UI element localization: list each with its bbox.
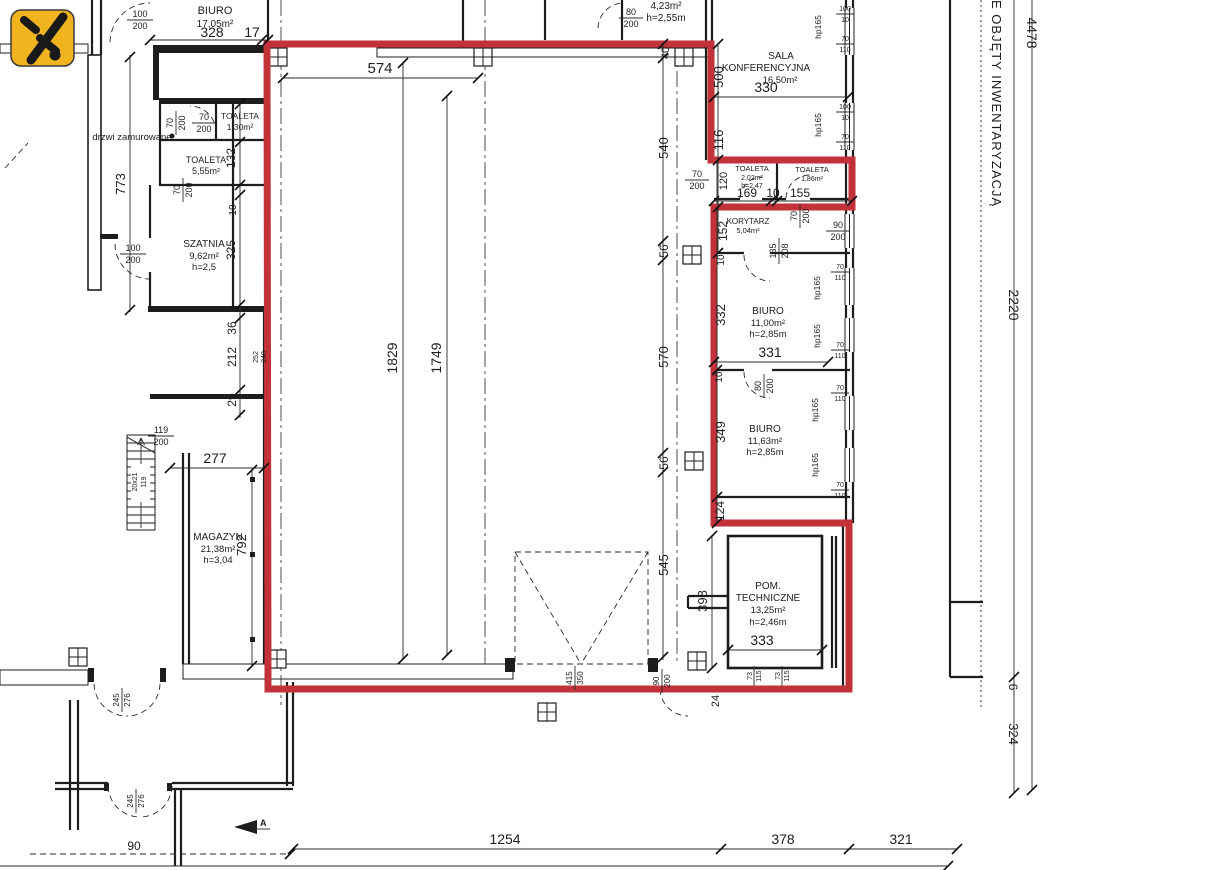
fr-135-208: 135 208: [768, 238, 790, 264]
dim-277: 277: [203, 450, 227, 466]
dim-24: 24: [710, 695, 722, 707]
fr-biuro-door: 100 200: [127, 9, 153, 31]
fr-stairs: 119 200: [148, 425, 174, 447]
dim-252: 252: [253, 351, 260, 363]
room-pomtech-name1: POM.: [755, 581, 781, 592]
fr-n: 70: [172, 185, 182, 195]
room-korytarz-name: KORYTARZ: [727, 217, 770, 226]
dim-332: 332: [713, 304, 728, 326]
fr-d: 200: [132, 21, 147, 31]
room-pomtech-name2: TECHNICZNE: [736, 593, 801, 604]
room-toaleta555-area: 5,55m²: [192, 166, 220, 176]
room-magazyn-height: h=3,04: [203, 555, 232, 566]
fr-n: 80: [753, 381, 763, 391]
room-biuro1100-name: BIURO: [752, 306, 784, 317]
room-szatnia-height: h=2,5: [192, 262, 216, 273]
fr-biuro2-door: 80 200: [753, 374, 775, 398]
fr-d: 110: [834, 396, 845, 403]
room-korytarz-area: 5,04m²: [736, 226, 760, 235]
dim-56a: 56: [657, 244, 671, 258]
room-biuro1163-area: 11,63m²: [748, 436, 782, 447]
room-biuro1163-name: BIURO: [749, 424, 781, 435]
dim-792: 792: [234, 534, 249, 556]
hp165-2: hp165: [813, 113, 823, 137]
room-sala-name1: SALA: [768, 51, 794, 62]
fr-n: 70: [836, 482, 844, 489]
room-biuro17-name: BIURO: [198, 5, 233, 17]
dim-90: 90: [127, 839, 141, 853]
fr-n: 70: [836, 264, 844, 271]
section-marker-label: A: [260, 818, 267, 828]
gate-opening: [515, 552, 648, 664]
fr-porch-door-2: 245 276: [126, 789, 146, 813]
fr-n: 70: [841, 36, 849, 43]
fr-n: 415: [565, 671, 574, 685]
fr-d: 110: [839, 47, 850, 54]
hp165-1: hp165: [813, 15, 823, 39]
fr-n: 135: [768, 243, 778, 258]
dim-4478: 4478: [1024, 17, 1040, 48]
room-biuro1100-height: h=2,85m: [749, 329, 786, 340]
stairs-width-label: 119: [141, 476, 148, 487]
room-pomtech-height: h=2,46m: [749, 617, 786, 628]
dim-570: 570: [656, 346, 671, 368]
hp165-6: hp165: [810, 453, 820, 477]
fr-n: 70: [836, 342, 844, 349]
floor-plan-canvas: 20x21 119 A BIURO 17,05m² TOALETA: [0, 0, 1223, 870]
fr-n: 70: [841, 134, 849, 141]
dim-545: 545: [656, 554, 671, 576]
dim-152: 152: [716, 221, 730, 241]
bricked-door-note: drzwi zamurowane: [92, 132, 171, 143]
room-magazyn-area: 21,38m²: [201, 544, 236, 555]
dim-169: 169: [737, 186, 757, 200]
fr-d: 200: [830, 232, 845, 242]
fr-toilet-right-door: 70 200: [685, 169, 709, 191]
dim-10b: 10: [228, 204, 239, 216]
dim-349: 349: [713, 421, 728, 443]
left-wall-strip: [88, 55, 101, 290]
inventory-note: E OBJĘTY INWENTARYZACJĄ: [989, 0, 1004, 207]
fr-n: 70: [836, 385, 844, 392]
fr-n: 73: [775, 672, 782, 680]
section-marker-a: A: [234, 818, 270, 834]
dim-398: 398: [695, 590, 710, 612]
fr-d: 200: [623, 19, 638, 29]
fr-porch-door-1: 245 276: [112, 688, 132, 712]
fr-d: 200: [196, 124, 211, 134]
dim-212: 212: [225, 347, 239, 367]
stairs-steps-label: 20x21: [132, 472, 139, 491]
dim-116: 116: [711, 130, 726, 151]
dim-378: 378: [771, 831, 795, 847]
fr-d: 110: [834, 353, 845, 360]
room-toaleta555-name: TOALETA: [186, 155, 226, 165]
fr-d: 276: [137, 794, 146, 808]
fr-n: 70: [199, 112, 209, 122]
fr-d: 350: [576, 671, 585, 685]
fr-n: 90: [833, 220, 843, 230]
dim-10d: 10: [714, 371, 725, 383]
fr-d: 200: [765, 378, 775, 393]
fr-toaleta-door-h: 70 200: [192, 112, 216, 134]
stairs: 20x21 119: [127, 435, 155, 530]
fr-d: 200: [184, 182, 194, 197]
fr-n: 100: [132, 9, 147, 19]
dim-331: 331: [758, 344, 782, 360]
fr-n: 70: [789, 211, 799, 221]
room-423-area: 4,23m²: [650, 1, 682, 12]
dim-120: 120: [718, 172, 730, 190]
room-biuro1100-area: 11,00m²: [751, 318, 785, 329]
dim-1749: 1749: [428, 342, 444, 373]
fr-n: 245: [112, 693, 121, 707]
dim-10c: 10: [716, 254, 727, 266]
fr-d: 10: [841, 17, 849, 24]
dim-17: 17: [244, 24, 260, 40]
dim-328: 328: [200, 24, 224, 40]
dim-321: 321: [889, 831, 913, 847]
room-toaleta130-name: TOALETA: [221, 111, 259, 121]
dim-132: 132: [224, 148, 238, 168]
fr-d: 200: [663, 674, 672, 688]
dim-124: 124: [713, 501, 727, 521]
fr-d: 110: [834, 275, 845, 282]
walls: [55, 0, 983, 866]
fr-n: 119: [154, 425, 168, 435]
dim-10a: 10: [766, 186, 780, 200]
fr-n: 80: [626, 7, 636, 17]
dim-36: 36: [225, 321, 239, 335]
dim-2220: 2220: [1006, 289, 1022, 320]
fr-d: 115: [784, 670, 791, 681]
fr-szatnia-left-door: 100 200: [120, 243, 146, 265]
fr-d: 276: [123, 693, 132, 707]
fr-n: 100: [839, 104, 851, 111]
columns: [69, 48, 706, 721]
dim-333: 333: [750, 632, 774, 648]
dim-56b: 56: [657, 456, 671, 470]
dim-155: 155: [790, 186, 810, 200]
dim-1829: 1829: [384, 342, 400, 373]
room-toaleta186-area: 1,86m²: [801, 176, 823, 183]
dim-325: 325: [224, 240, 238, 260]
dim-540: 540: [656, 137, 671, 159]
room-toaleta130-area: 1,30m²: [227, 122, 254, 132]
fr-d: 200: [125, 255, 140, 265]
room-423-height: h=2,55m: [646, 13, 685, 24]
room-toaleta202-name: TOALETA: [735, 164, 768, 173]
dim-40: 40: [660, 47, 672, 59]
room-toaleta186-name: TOALETA: [795, 165, 828, 174]
company-logo: [11, 10, 74, 66]
floor-plan-drawing: 20x21 119 A BIURO 17,05m² TOALETA: [0, 0, 1223, 870]
dim-330: 330: [754, 79, 778, 95]
dim-574: 574: [367, 60, 392, 77]
fr-d: 200: [801, 208, 811, 223]
fr-n: 100: [125, 243, 140, 253]
fr-d: 208: [780, 243, 790, 258]
fr-d: 110: [839, 145, 850, 152]
room-biuro1163-height: h=2,85m: [746, 447, 783, 458]
fr-d: 10: [841, 115, 849, 122]
fr-n: 90: [652, 676, 661, 685]
hp165-4: hp165: [812, 324, 822, 348]
fr-n: 73: [747, 672, 754, 680]
dim-29: 29: [225, 393, 239, 407]
hp165-5: hp165: [810, 398, 820, 422]
dim-6: 6: [1006, 684, 1020, 691]
fr-n: 70: [165, 118, 175, 128]
dim-500: 500: [711, 66, 726, 88]
dim-324: 324: [1006, 723, 1021, 745]
fr-d: 200: [689, 181, 704, 191]
fr-n: 245: [126, 794, 135, 808]
fr-n: 70: [692, 169, 702, 179]
dim-773: 773: [113, 173, 128, 195]
fr-d: 110: [834, 493, 845, 500]
fr-szatnia-top-door: 70 200: [172, 178, 194, 202]
dim-1254: 1254: [489, 831, 520, 847]
fr-d: 200: [153, 437, 168, 447]
fr-d: 115: [756, 670, 763, 681]
fr-n: 100: [839, 6, 851, 13]
room-sala-name2: KONFERENCYJNA: [722, 63, 811, 74]
dimension-lines: [0, 0, 1037, 870]
room-szatnia-name: SZATNIA: [183, 239, 225, 250]
room-pomtech-area: 13,25m²: [751, 605, 786, 616]
room-toaleta202-area: 2,02m²: [741, 175, 763, 182]
dim-248: 248: [261, 351, 268, 363]
room-szatnia-area: 9,62m²: [189, 251, 219, 262]
hp165-3: hp165: [812, 276, 822, 300]
fr-d: 200: [177, 115, 187, 130]
